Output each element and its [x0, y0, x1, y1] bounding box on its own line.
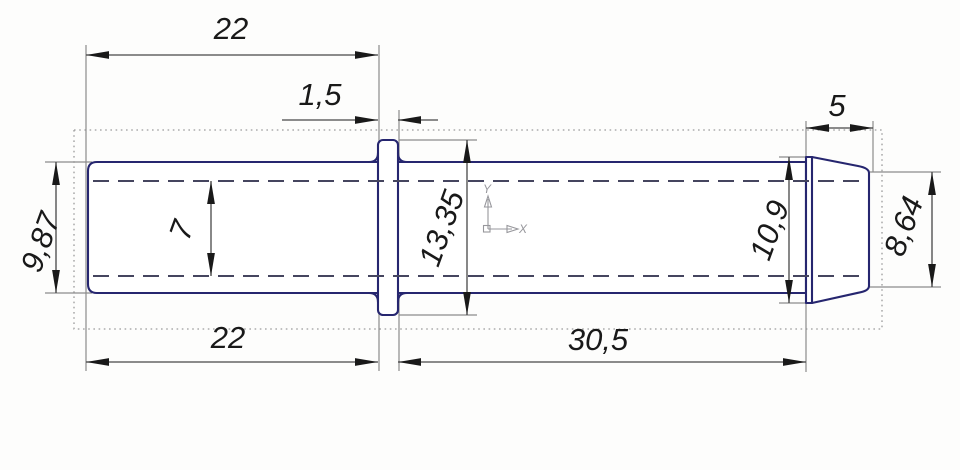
arrowhead-icon [52, 162, 60, 185]
dim-flange-width: 1,5 [298, 77, 342, 112]
arrowhead-icon [86, 358, 109, 366]
arrowhead-icon [355, 116, 378, 124]
arrowhead-icon [86, 51, 109, 59]
arrowhead-icon [850, 124, 873, 132]
arrowhead-icon [398, 358, 421, 366]
dim-left-outer-diameter: 9,87 [14, 206, 68, 276]
cad-drawing-canvas[interactable]: 22 1,5 5 22 30,5 9,87 7 13,35 10,9 8,64 … [0, 0, 960, 470]
y-axis-label: Y [483, 182, 492, 196]
arrowhead-icon [463, 292, 471, 315]
arrowhead-icon [398, 116, 421, 124]
arrowhead-icon [52, 270, 60, 293]
flange [378, 140, 398, 315]
arrowhead-icon [783, 358, 806, 366]
dim-bottom-left-length: 22 [210, 320, 245, 355]
tapered-tip [806, 157, 869, 303]
arrowhead-icon [463, 140, 471, 163]
arrowhead-icon [806, 124, 829, 132]
dim-tip-length: 5 [828, 88, 846, 123]
dim-tip-minor-diameter: 8,64 [877, 192, 931, 261]
arrowhead-icon [928, 264, 936, 287]
arrowhead-icon [355, 358, 378, 366]
arrowhead-icon [355, 51, 378, 59]
dim-body-length: 30,5 [568, 322, 629, 357]
arrowhead-icon [928, 172, 936, 195]
dim-top-length: 22 [213, 11, 248, 46]
x-axis-label: X [518, 222, 528, 236]
